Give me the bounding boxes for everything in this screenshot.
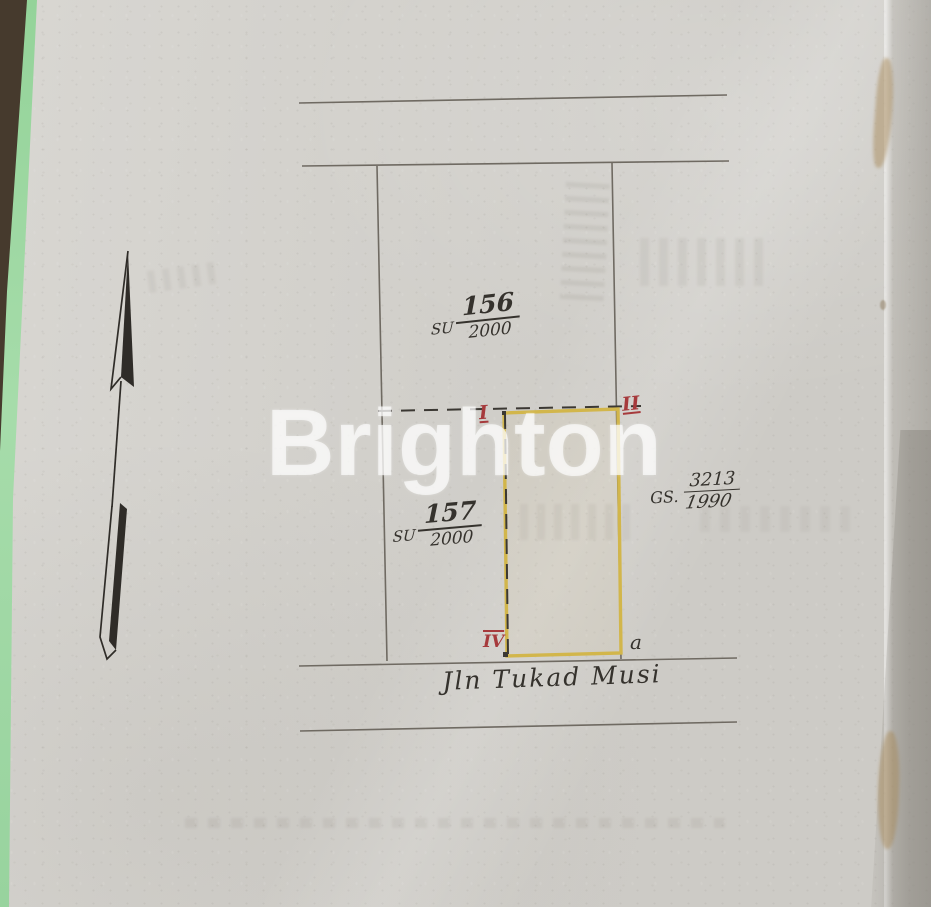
parcel-157-prefix: SU bbox=[392, 526, 416, 546]
top-boundary-line-1 bbox=[299, 95, 727, 103]
corner-mark-bottom-left bbox=[503, 652, 508, 657]
survey-reference-prefix: GS. bbox=[650, 487, 679, 507]
corner-label-a: a bbox=[630, 632, 642, 652]
top-boundary-line-2 bbox=[302, 161, 729, 166]
scanned-survey-document: SU 156 2000 SU 157 2000 GS. 3213 1990 I … bbox=[0, 0, 931, 907]
highlighted-plot-outline bbox=[504, 409, 621, 656]
north-arrow-fletching-filled bbox=[109, 503, 127, 650]
survey-reference-year: 1990 bbox=[684, 490, 734, 514]
parcel-156-fraction: 156 2000 bbox=[454, 288, 523, 344]
paper-speck bbox=[880, 300, 886, 310]
left-parcel-boundary bbox=[377, 166, 387, 661]
north-arrow-shaft bbox=[112, 381, 121, 507]
survey-reference-label: GS. 3213 1990 bbox=[649, 470, 742, 516]
corner-label-I: I bbox=[478, 404, 488, 424]
parcel-156-prefix: SU bbox=[431, 318, 454, 339]
parcel-157-label: SU 157 2000 bbox=[390, 497, 485, 554]
parcel-156-label: SU 156 2000 bbox=[428, 288, 524, 347]
survey-reference-fraction: 3213 1990 bbox=[684, 470, 742, 514]
parcel-157-fraction: 157 2000 bbox=[417, 497, 485, 552]
parcel-157-denominator: 2000 bbox=[430, 527, 473, 551]
site-plan-drawing bbox=[0, 0, 931, 907]
corner-mark-top-left bbox=[502, 411, 506, 415]
north-arrow-icon bbox=[100, 251, 134, 659]
corner-label-II: II bbox=[621, 394, 641, 415]
north-arrow-head-filled bbox=[121, 251, 134, 387]
corner-label-IV: IV bbox=[483, 634, 504, 651]
street-edge-bottom bbox=[300, 722, 737, 731]
